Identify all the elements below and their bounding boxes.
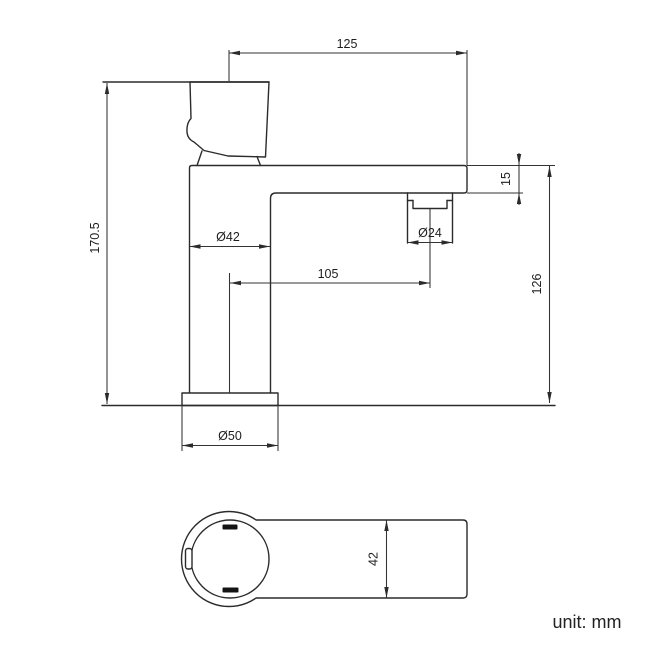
dim-15-label: 15 (499, 172, 513, 186)
dimension-spout-thickness: 15 (467, 153, 555, 205)
dim-125-arrow-left (229, 51, 240, 55)
dim-24-arrow-right (442, 240, 453, 244)
lever-tab (186, 549, 193, 570)
dim-170-arrow-bottom (105, 393, 109, 404)
dim-24-label: Ø24 (418, 226, 442, 240)
dim-42-arrow-right (259, 244, 270, 248)
dim-126-arrow-top (547, 166, 551, 177)
spout-plan-outline (256, 520, 467, 598)
aerator-insert (413, 201, 447, 209)
dim-plan-42-label: 42 (367, 552, 381, 566)
technical-drawing-page: 125 170.5 15 Ø42 (0, 0, 650, 650)
base-flange (182, 393, 278, 406)
dim-15-arrow-bottom (517, 193, 521, 204)
dim-42-label: Ø42 (216, 230, 240, 244)
technical-drawing-canvas: 125 170.5 15 Ø42 (0, 0, 650, 650)
dim-105-arrow-right (419, 281, 430, 285)
neck-left-line (197, 151, 202, 166)
dim-170-label: 170.5 (88, 222, 102, 253)
dim-126-arrow-bottom (547, 392, 551, 403)
dim-125-arrow-right (456, 51, 467, 55)
dim-105-arrow-left (230, 281, 241, 285)
neck-right-line (257, 157, 261, 166)
dim-126-label: 126 (530, 274, 544, 295)
dim-42-arrow-left (190, 244, 201, 248)
dim-24-arrow-left (408, 240, 419, 244)
dim-50-arrow-right (267, 443, 278, 447)
handle-outline (187, 82, 269, 157)
dim-105-label: 105 (318, 267, 339, 281)
dimension-base-diameter: Ø50 (182, 406, 278, 452)
unit-label: unit: mm (552, 612, 621, 632)
side-view: 125 170.5 15 Ø42 (88, 37, 555, 451)
dim-125-label: 125 (337, 37, 358, 51)
dim-125-extension-lines (229, 50, 467, 165)
dimension-total-height: 170.5 (88, 83, 109, 404)
indicator-mark-top (223, 525, 238, 530)
dimension-top-width: 125 (229, 37, 467, 165)
dimension-spout-reach: 105 (230, 267, 430, 285)
dim-15-arrow-top (517, 154, 521, 165)
indicator-mark-bottom (223, 588, 239, 593)
dim-50-arrow-left (182, 443, 193, 447)
top-view: 42 (182, 512, 468, 607)
dim-50-label: Ø50 (218, 429, 242, 443)
dimension-spout-height: 126 (530, 166, 552, 403)
dim-170-arrow-top (105, 83, 109, 94)
dimension-body-diameter: Ø42 (190, 230, 271, 249)
